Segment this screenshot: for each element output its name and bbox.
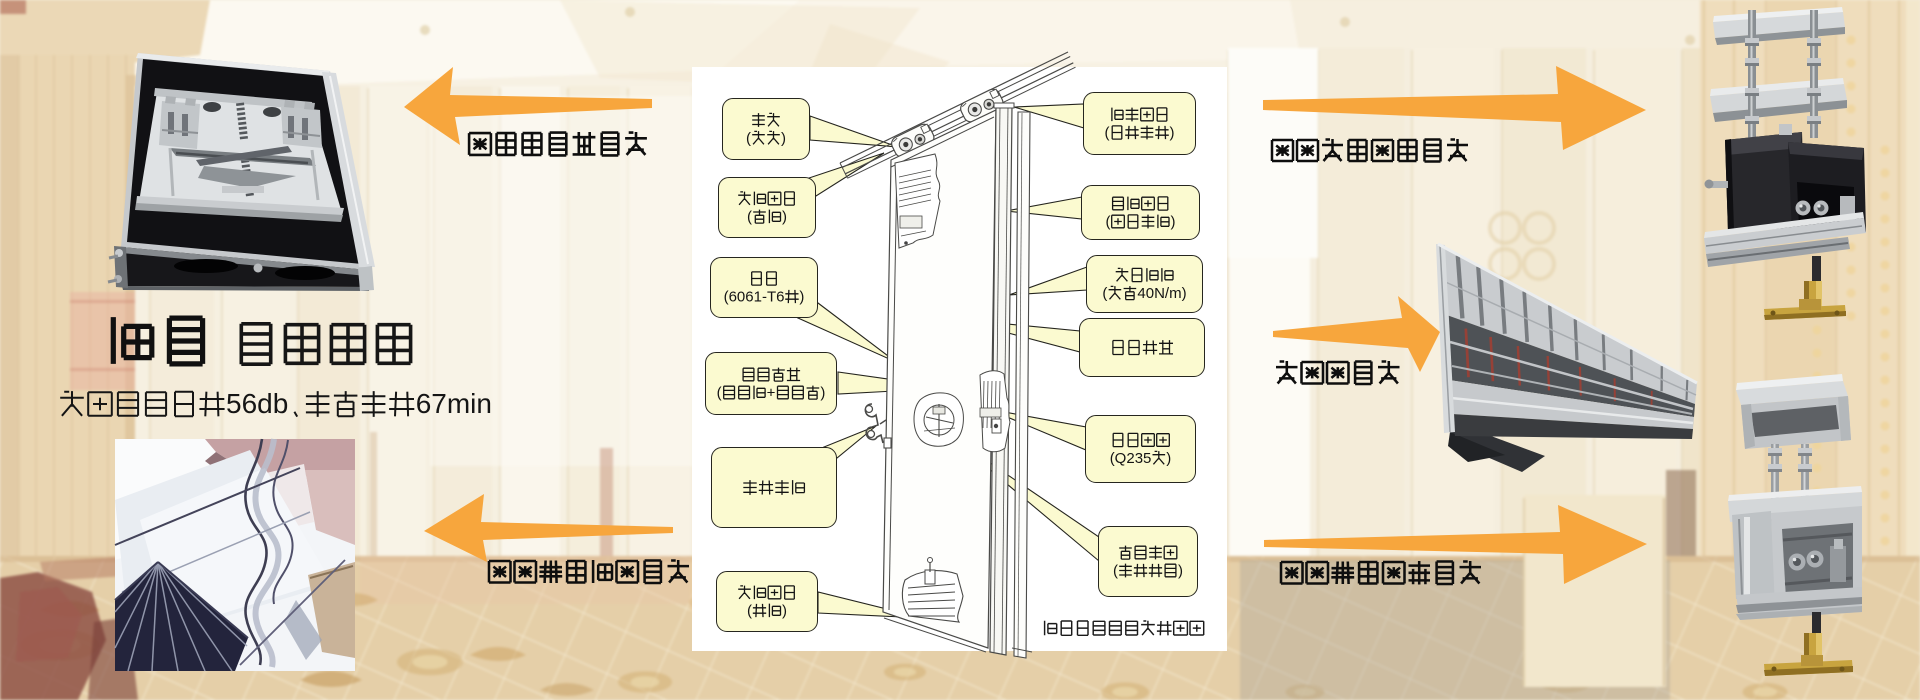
- svg-text:): ): [1170, 124, 1175, 141]
- svg-text:): ): [1178, 562, 1183, 579]
- svg-text:(Q235: (Q235: [1110, 450, 1152, 467]
- svg-text:): ): [782, 208, 787, 225]
- svg-text:(: (: [747, 602, 752, 619]
- svg-text:): ): [1171, 213, 1176, 230]
- svg-text:): ): [1166, 450, 1171, 467]
- svg-text:56db: 56db: [226, 388, 288, 419]
- svg-text:(: (: [1113, 562, 1118, 579]
- svg-text:67min: 67min: [416, 388, 492, 419]
- svg-text:(: (: [746, 130, 751, 147]
- svg-text:(: (: [1106, 213, 1111, 230]
- svg-text:): ): [820, 384, 825, 401]
- svg-text:40N/m): 40N/m): [1137, 285, 1186, 302]
- svg-text:(: (: [747, 208, 752, 225]
- svg-text:+: +: [767, 384, 776, 401]
- svg-text:(: (: [1105, 124, 1110, 141]
- svg-text:(: (: [1102, 285, 1107, 302]
- svg-text:): ): [799, 288, 804, 305]
- svg-text:(6061-T6: (6061-T6: [724, 288, 785, 305]
- svg-text:): ): [781, 130, 786, 147]
- svg-text:): ): [782, 602, 787, 619]
- svg-text:(: (: [717, 384, 722, 401]
